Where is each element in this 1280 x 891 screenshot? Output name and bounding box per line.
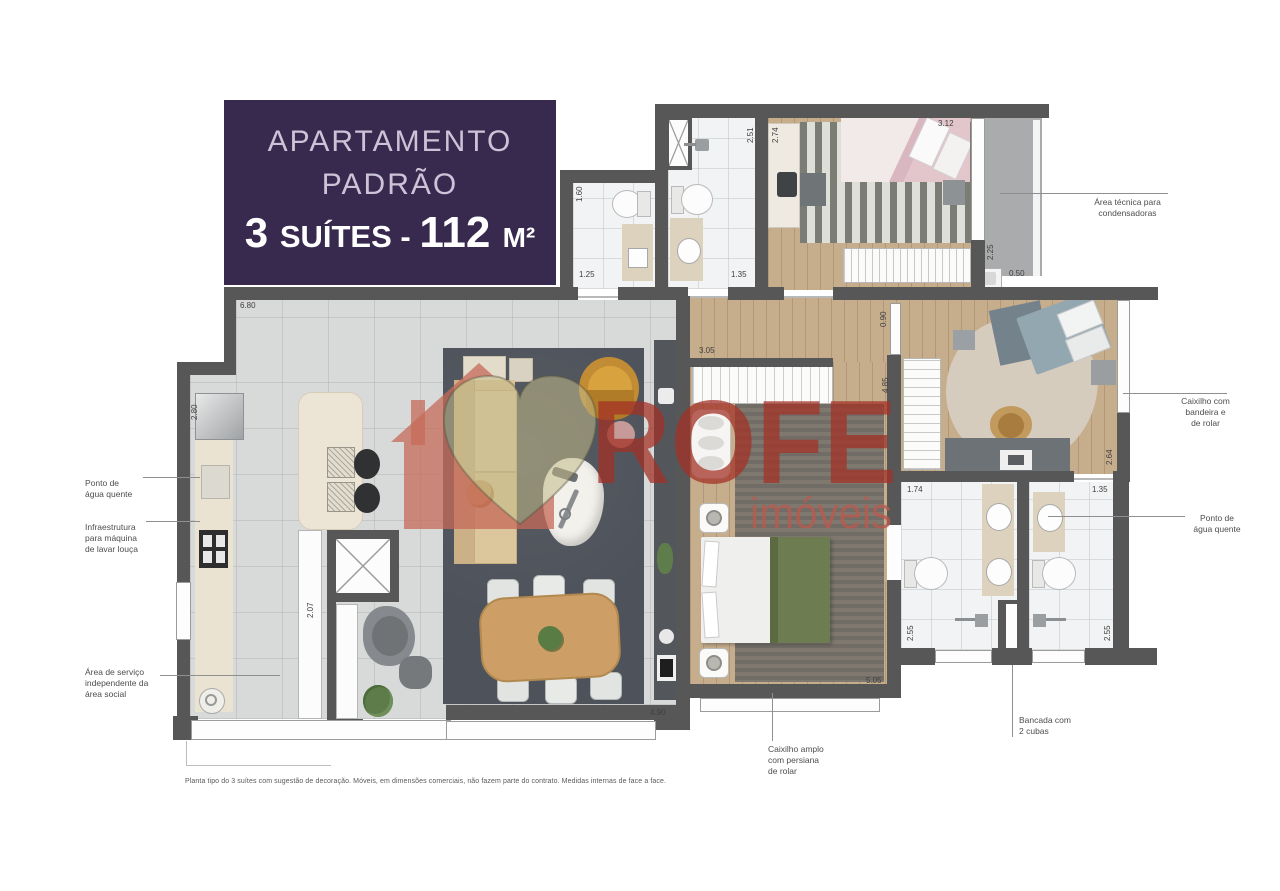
svg-text:imóveis: imóveis [750, 489, 892, 538]
